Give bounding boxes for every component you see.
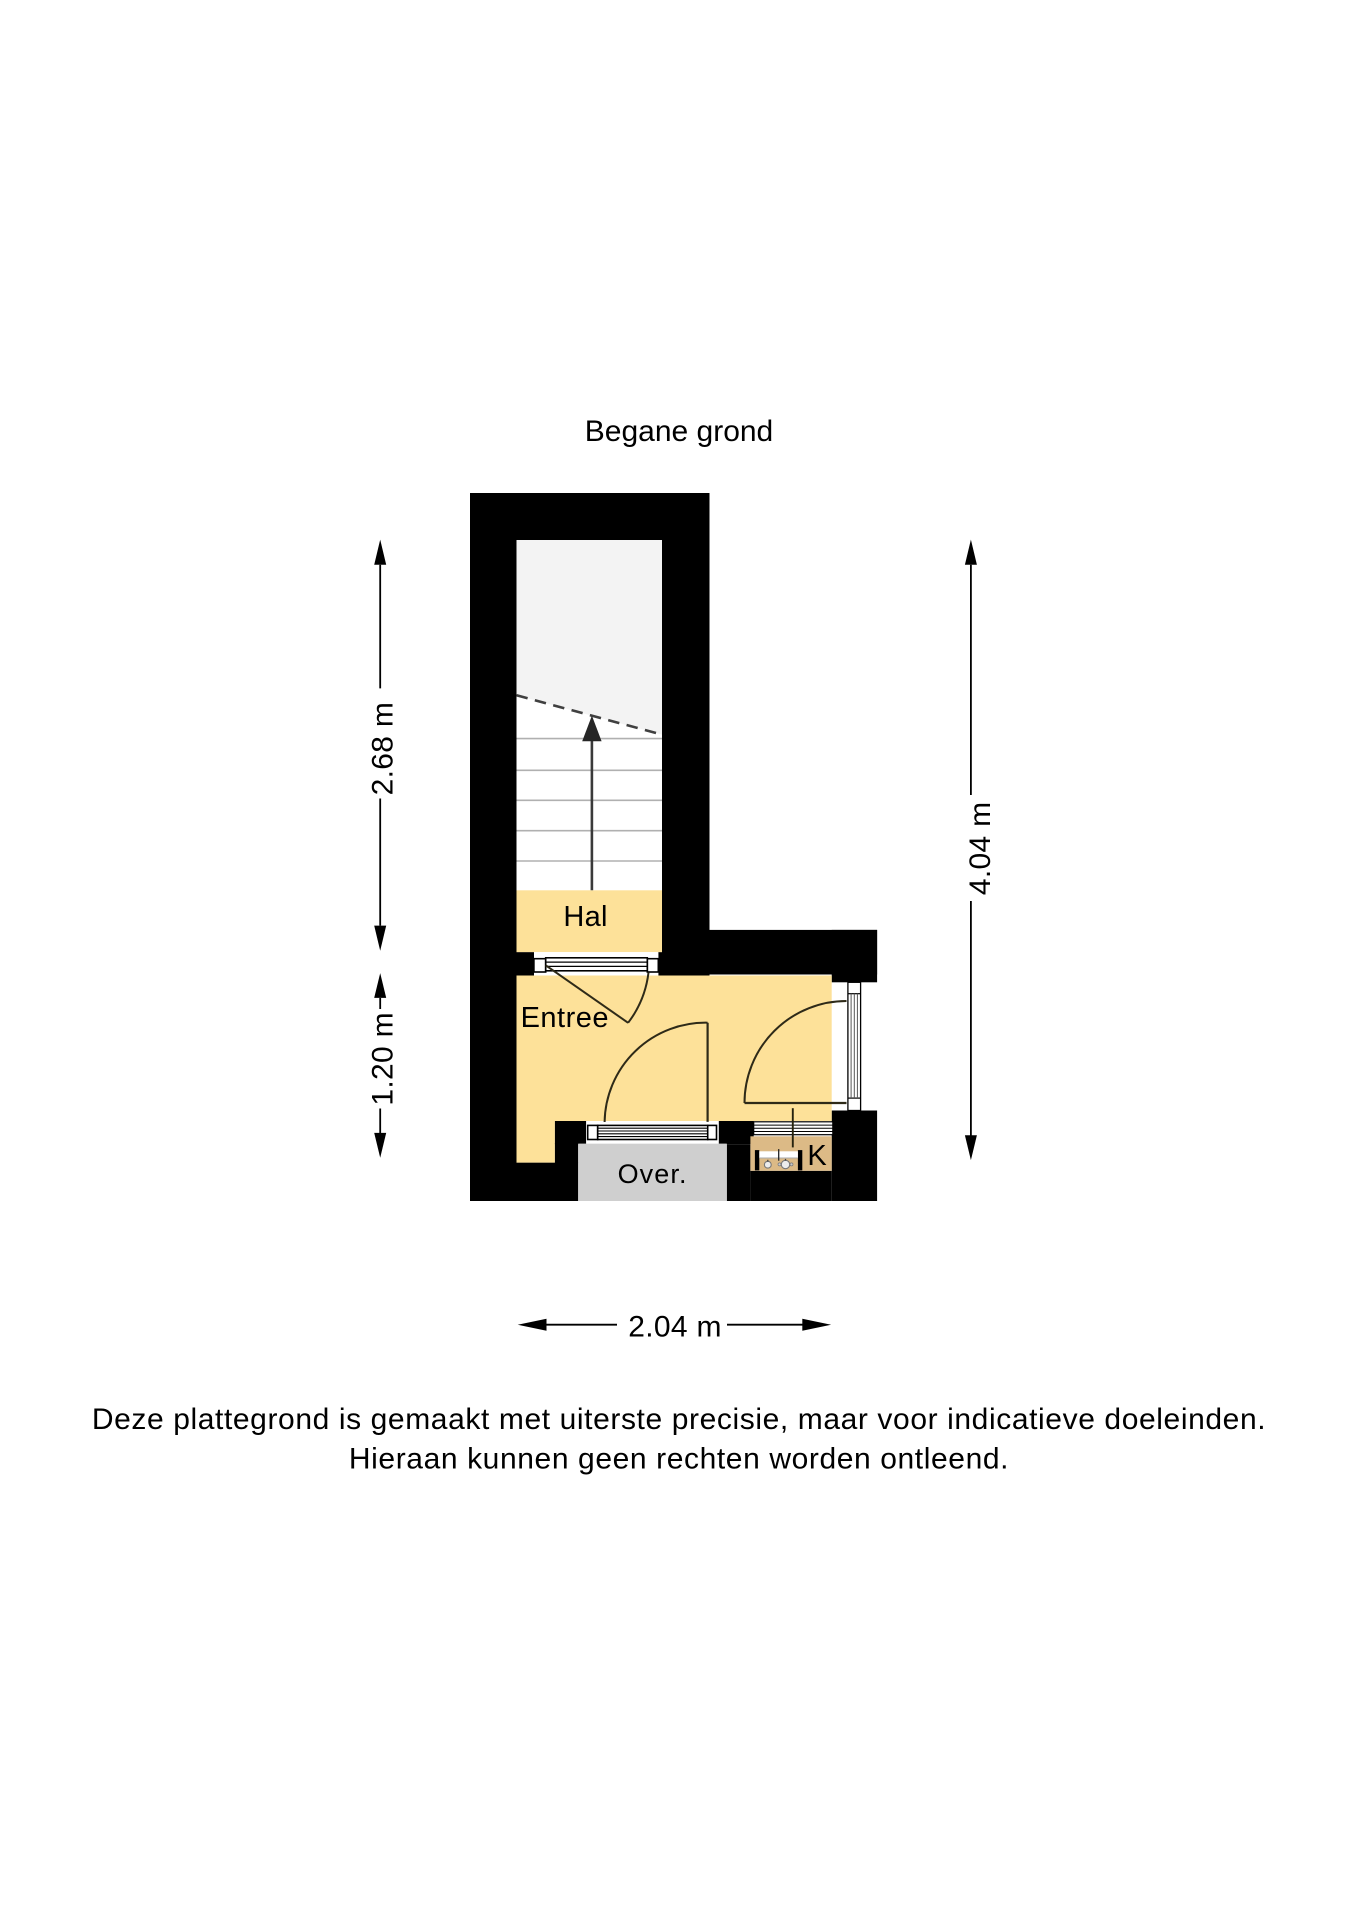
svg-text:Over.: Over.: [618, 1159, 688, 1189]
svg-text:Deze plattegrond is gemaakt me: Deze plattegrond is gemaakt met uiterste…: [92, 1403, 1266, 1436]
svg-text:Hieraan kunnen geen rechten wo: Hieraan kunnen geen rechten worden ontle…: [349, 1442, 1009, 1475]
svg-text:Begane grond: Begane grond: [585, 415, 774, 448]
svg-text:K: K: [807, 1140, 827, 1172]
svg-text:1.20 m: 1.20 m: [367, 1012, 400, 1106]
svg-text:2.68 m: 2.68 m: [367, 702, 400, 796]
svg-text:Hal: Hal: [563, 901, 607, 933]
svg-text:4.04 m: 4.04 m: [964, 802, 997, 896]
svg-text:Entree: Entree: [521, 1002, 609, 1034]
svg-text:2.04 m: 2.04 m: [628, 1311, 722, 1344]
